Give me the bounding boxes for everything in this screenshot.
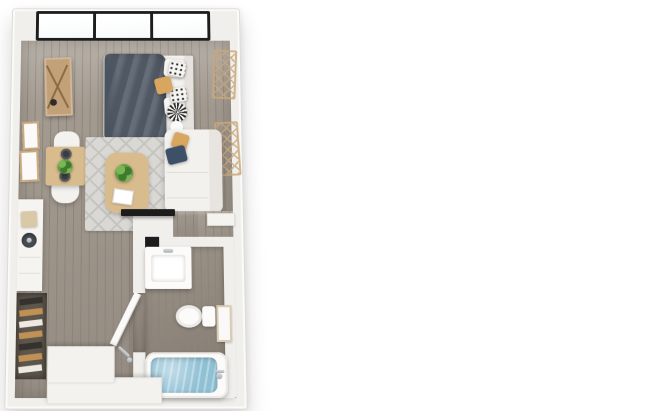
clothes-item [19, 330, 43, 339]
sink-faucet [163, 249, 173, 253]
clothes-item [19, 342, 43, 351]
door-handle [118, 346, 131, 358]
page-canvas [0, 0, 650, 411]
duvet-fold [104, 54, 118, 140]
door-handle-knob [127, 357, 132, 362]
closet [15, 293, 47, 379]
clothes-item [19, 319, 43, 328]
clothes-item [18, 364, 42, 373]
tv [121, 209, 175, 216]
floor-plan [4, 8, 248, 409]
wall-art-frame [22, 121, 40, 150]
lattice-wall-decor [212, 49, 237, 99]
wall-art-frame [19, 150, 39, 182]
sofa-seat-seam [167, 172, 209, 173]
sofa-seat-seam [167, 197, 209, 198]
clothes-item [18, 353, 42, 362]
cutting-board [21, 211, 38, 228]
sink-drain [27, 238, 32, 243]
round-cushion [167, 103, 187, 122]
entry-step-upper [47, 346, 115, 383]
coffee-table [105, 153, 149, 214]
accent-pillow [165, 145, 188, 166]
window-pane [39, 14, 93, 38]
shelf-vase [50, 99, 57, 106]
book [112, 188, 134, 205]
window-pane [96, 14, 150, 38]
sink-basin [151, 255, 185, 282]
ladder-shelf [44, 57, 73, 116]
cabinet-divider [19, 273, 40, 274]
entry [45, 342, 163, 404]
clothes-item [19, 297, 43, 306]
wall-shelf [207, 213, 235, 226]
duvet [104, 54, 166, 140]
kitchenette-counter [17, 199, 44, 291]
centerpiece-plant [58, 159, 73, 174]
dining-chair [51, 184, 79, 204]
window [36, 11, 211, 41]
potted-plant [115, 164, 133, 182]
window-pane [153, 14, 207, 38]
clothes-item [19, 308, 43, 317]
patterned-pillow [168, 61, 187, 78]
cabinet-divider [19, 257, 40, 258]
toilet-tank [202, 306, 215, 326]
wall-frame-mirror [216, 305, 232, 342]
kitchen-sink [21, 233, 36, 248]
sofa [164, 129, 222, 213]
vanity-sink [145, 247, 192, 289]
toilet-bowl [176, 305, 203, 327]
dinner-plate [61, 149, 72, 160]
tub-faucet-knob [216, 373, 222, 379]
sofa-backrest [209, 129, 223, 213]
